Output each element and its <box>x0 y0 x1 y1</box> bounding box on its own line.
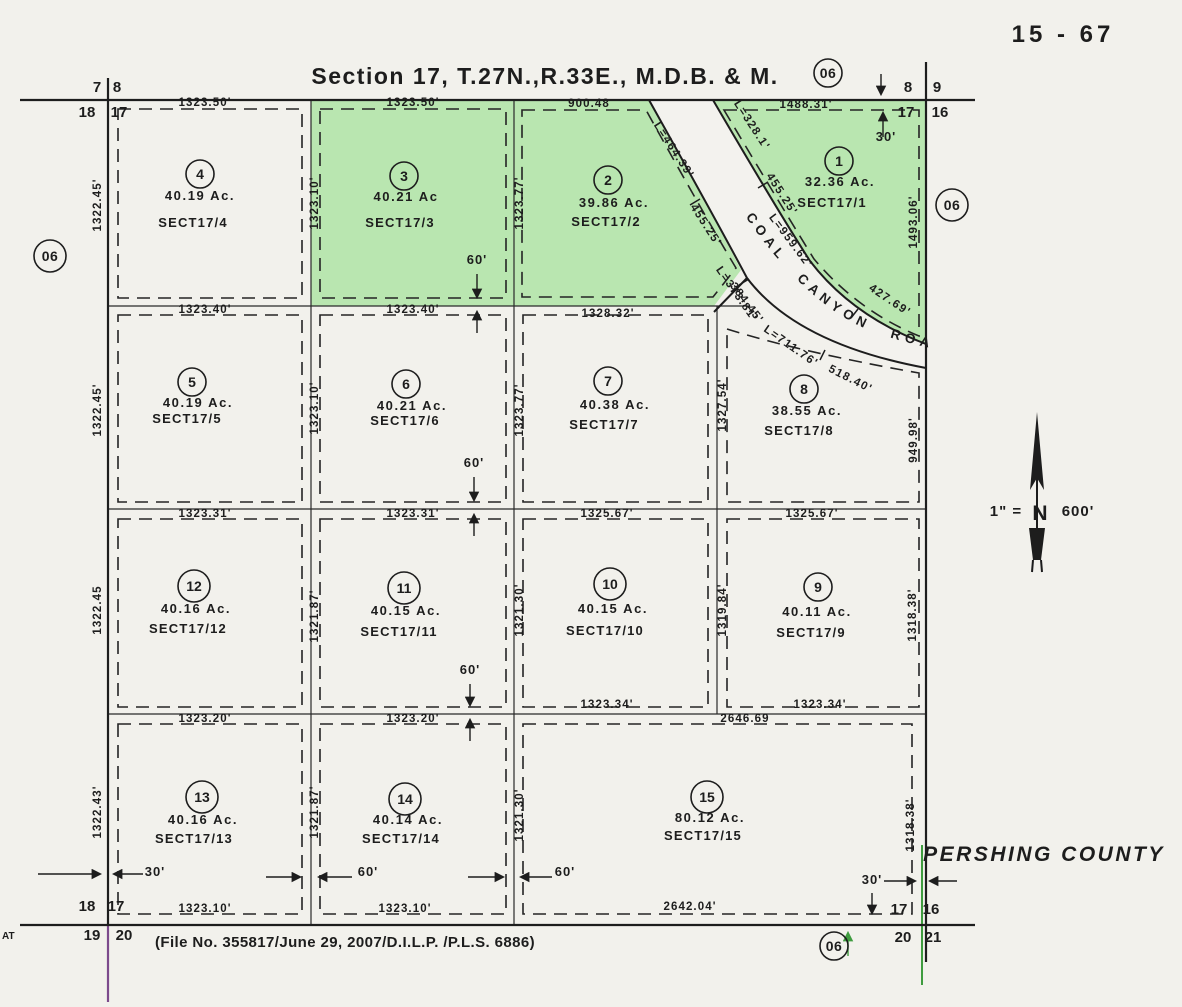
section-corner-label: 21 <box>925 929 942 946</box>
dimension-label: 1323.20' <box>178 713 231 725</box>
annotation-label: 60' <box>358 864 379 879</box>
parcel-label-group: 1040.15 Ac.SECT17/10 <box>566 568 648 638</box>
road-dimension-label: 518.40' <box>826 363 874 395</box>
parcel-label-group: 838.55 Ac.SECT17/8 <box>764 375 842 438</box>
parcel-acreage: 80.12 Ac. <box>675 810 745 825</box>
reference-circle-group: 06 <box>936 189 968 221</box>
parcel-acreage: 40.19 Ac. <box>165 188 235 203</box>
dimension-label: 1321.87' <box>309 589 321 642</box>
dimension-label: 900.48 <box>568 98 610 110</box>
dimension-label: 1323.10' <box>309 381 321 434</box>
parcel-sect-label: SECT17/12 <box>149 621 227 636</box>
section-corner-label: 8 <box>113 79 121 96</box>
dimension-label: 1323.31' <box>178 508 231 520</box>
dimension-label: 1323.34' <box>580 699 633 711</box>
annotation-label: 60' <box>555 864 576 879</box>
section-corner-label: 20 <box>116 927 133 944</box>
dimension-label: 1323.77' <box>514 383 526 436</box>
north-letter: N <box>1032 502 1047 525</box>
section-corner-label: 9 <box>933 79 941 96</box>
section-corner-label: 16 <box>923 901 940 918</box>
sheet-number: 15 - 67 <box>1012 21 1115 48</box>
dimension-label: 1323.77' <box>514 176 526 229</box>
dimension-label: 1323.34' <box>793 699 846 711</box>
parcel-acreage: 40.16 Ac. <box>161 601 231 616</box>
reference-circle-number: 06 <box>820 65 837 81</box>
reference-circle-group: 06 <box>814 59 842 87</box>
plat-map-svg: Section 17, T.27N.,R.33E., M.D.B. & M. 1… <box>0 0 1182 1007</box>
dimension-label: 1322.45' <box>92 383 104 436</box>
parcel-acreage: 40.14 Ac. <box>373 812 443 827</box>
dimension-label: 1323.20' <box>386 713 439 725</box>
section-corner-label: 8 <box>904 79 912 96</box>
parcel-number: 15 <box>699 789 715 805</box>
parcel-acreage: 40.38 Ac. <box>580 397 650 412</box>
parcel-sect-label: SECT17/11 <box>360 624 437 639</box>
dimension-label: 949.98' <box>908 417 920 463</box>
dimension-label: 1325.67' <box>580 508 633 520</box>
file-note: (File No. 355817/June 29, 2007/D.I.L.P. … <box>155 934 535 951</box>
parcel-label-group: 1580.12 Ac.SECT17/15 <box>664 781 745 843</box>
parcel-sect-label: SECT17/13 <box>155 831 233 846</box>
parcel-sect-label: SECT17/4 <box>158 215 228 230</box>
dimension-label: 1323.40' <box>386 304 439 316</box>
parcel-label-group: 1440.14 Ac.SECT17/14 <box>362 783 443 846</box>
dimension-label: 2642.04' <box>663 901 716 913</box>
reference-circle-number: 06 <box>826 938 843 954</box>
parcel-acreage: 39.86 Ac. <box>579 195 649 210</box>
annotation-label: 30' <box>862 872 883 887</box>
parcel-acreage: 32.36 Ac. <box>805 174 875 189</box>
parcel-number: 3 <box>400 168 408 184</box>
annotation-label: 60' <box>467 252 488 267</box>
county-label: PERSHING COUNTY <box>923 843 1165 866</box>
dimension-label: 1322.43' <box>92 785 104 838</box>
parcel-sect-label: SECT17/1 <box>797 195 867 210</box>
annotation-label: 30' <box>145 864 166 879</box>
north-arrow <box>1029 412 1045 572</box>
dimension-label: 1318.38' <box>907 588 919 641</box>
section-corner-label: 16 <box>932 104 949 121</box>
parcel-label-group: 1340.16 Ac.SECT17/13 <box>155 781 238 846</box>
map-title: Section 17, T.27N.,R.33E., M.D.B. & M. <box>311 63 778 89</box>
scale-prefix: 1" = <box>990 503 1022 520</box>
dimension-label: 1323.50' <box>386 97 439 109</box>
parcel-number: 5 <box>188 374 196 390</box>
dimension-label: 1323.31' <box>386 508 439 520</box>
parcel-acreage: 40.21 Ac. <box>377 398 447 413</box>
parcel-number: 10 <box>602 576 618 592</box>
parcel-number: 14 <box>397 791 413 807</box>
annotation-label: 30' <box>876 129 897 144</box>
parcel-number: 1 <box>835 153 843 169</box>
parcel-sect-label: SECT17/6 <box>370 413 440 428</box>
parcel-sect-label: SECT17/8 <box>764 423 834 438</box>
dimension-label: 1322.45 <box>92 585 104 634</box>
dimension-label: 1323.10' <box>309 176 321 229</box>
parcel-number: 11 <box>397 580 412 596</box>
parcel-sect-label: SECT17/9 <box>776 625 846 640</box>
reference-circle-number: 06 <box>944 197 961 213</box>
dimension-label: 1318.38' <box>905 798 917 851</box>
reference-circle-group: 06 <box>820 932 848 960</box>
parcel-label-group: 440.19 Ac.SECT17/4 <box>158 160 235 230</box>
parcel-sect-label: SECT17/15 <box>664 828 742 843</box>
dimension-label: 1319.84' <box>717 583 729 636</box>
dimension-label: 1321.87' <box>309 785 321 838</box>
section-corner-label: 19 <box>84 927 101 944</box>
parcel-label-group: 940.11 Ac.SECT17/9 <box>776 573 852 640</box>
section-corner-label: 18 <box>79 898 96 915</box>
section-corner-label: 17 <box>108 898 125 915</box>
reference-circle-group: 06 <box>34 240 66 272</box>
dimension-label: 1488.31' <box>779 99 832 111</box>
annotation-label: 60' <box>464 455 485 470</box>
section-corner-label: 17 <box>891 901 908 918</box>
parcel-number: 9 <box>814 579 822 595</box>
parcel-number: 2 <box>604 172 612 188</box>
parcel-sect-label: SECT17/3 <box>365 215 435 230</box>
dimension-label: 1325.67' <box>785 508 838 520</box>
parcel-acreage: 38.55 Ac. <box>772 403 842 418</box>
section-corner-label: 18 <box>79 104 96 121</box>
parcel-sect-label: SECT17/10 <box>566 623 644 638</box>
dimension-label: 1328.32' <box>581 308 634 320</box>
parcel-acreage: 40.16 Ac. <box>168 812 238 827</box>
parcel-number: 6 <box>402 376 410 392</box>
parcel-acreage: 40.19 Ac. <box>163 395 233 410</box>
parcel-label-group: 640.21 Ac.SECT17/6 <box>370 370 447 428</box>
parcel-label-group: 1140.15 Ac.SECT17/11 <box>360 572 441 639</box>
parcel-acreage: 40.15 Ac. <box>371 603 441 618</box>
dimension-label: 1493.06' <box>908 195 920 248</box>
annotation-label: 60' <box>460 662 481 677</box>
parcel-label-group: 540.19 Ac.SECT17/5 <box>152 368 233 426</box>
dimension-label: 2646.69 <box>720 713 769 725</box>
dimension-label: 1323.50' <box>178 97 231 109</box>
section-corner-label: 20 <box>895 929 912 946</box>
parcel-acreage: 40.11 Ac. <box>782 604 852 619</box>
parcel-sect-label: SECT17/7 <box>569 417 639 432</box>
parcel-number: 4 <box>196 166 204 182</box>
dimension-label: 1323.10' <box>378 903 431 915</box>
scale-suffix: 600' <box>1062 503 1095 520</box>
dimension-label: 1321.30' <box>514 583 526 636</box>
dimension-label: 1327.54' <box>717 378 729 431</box>
reference-circle-number: 06 <box>42 248 59 264</box>
parcel-number: 8 <box>800 381 808 397</box>
parcel-sect-label: SECT17/14 <box>362 831 440 846</box>
dimension-label: 1321.30' <box>514 788 526 841</box>
parcel-label-group: 1240.16 Ac.SECT17/12 <box>149 570 231 636</box>
plat-sheet: Section 17, T.27N.,R.33E., M.D.B. & M. 1… <box>0 0 1182 1007</box>
section-corner-label: 17 <box>898 104 915 121</box>
parcel-number: 13 <box>194 789 210 805</box>
parcel-acreage: 40.15 Ac. <box>578 601 648 616</box>
parcel-number: 7 <box>604 373 612 389</box>
edge-cutoff-text: AT <box>2 931 15 942</box>
parcel-sect-label: SECT17/5 <box>152 411 222 426</box>
parcel-sect-label: SECT17/2 <box>571 214 641 229</box>
dimension-label: 1322.45' <box>92 178 104 231</box>
dimension-label: 1323.40' <box>178 304 231 316</box>
parcel-acreage: 40.21 Ac <box>373 189 438 204</box>
dimension-label: 1323.10' <box>178 903 231 915</box>
parcel-label-group: 740.38 Ac.SECT17/7 <box>569 367 650 432</box>
section-corner-label: 17 <box>111 104 128 121</box>
parcel-number: 12 <box>186 578 202 594</box>
section-corner-label: 7 <box>93 79 101 96</box>
